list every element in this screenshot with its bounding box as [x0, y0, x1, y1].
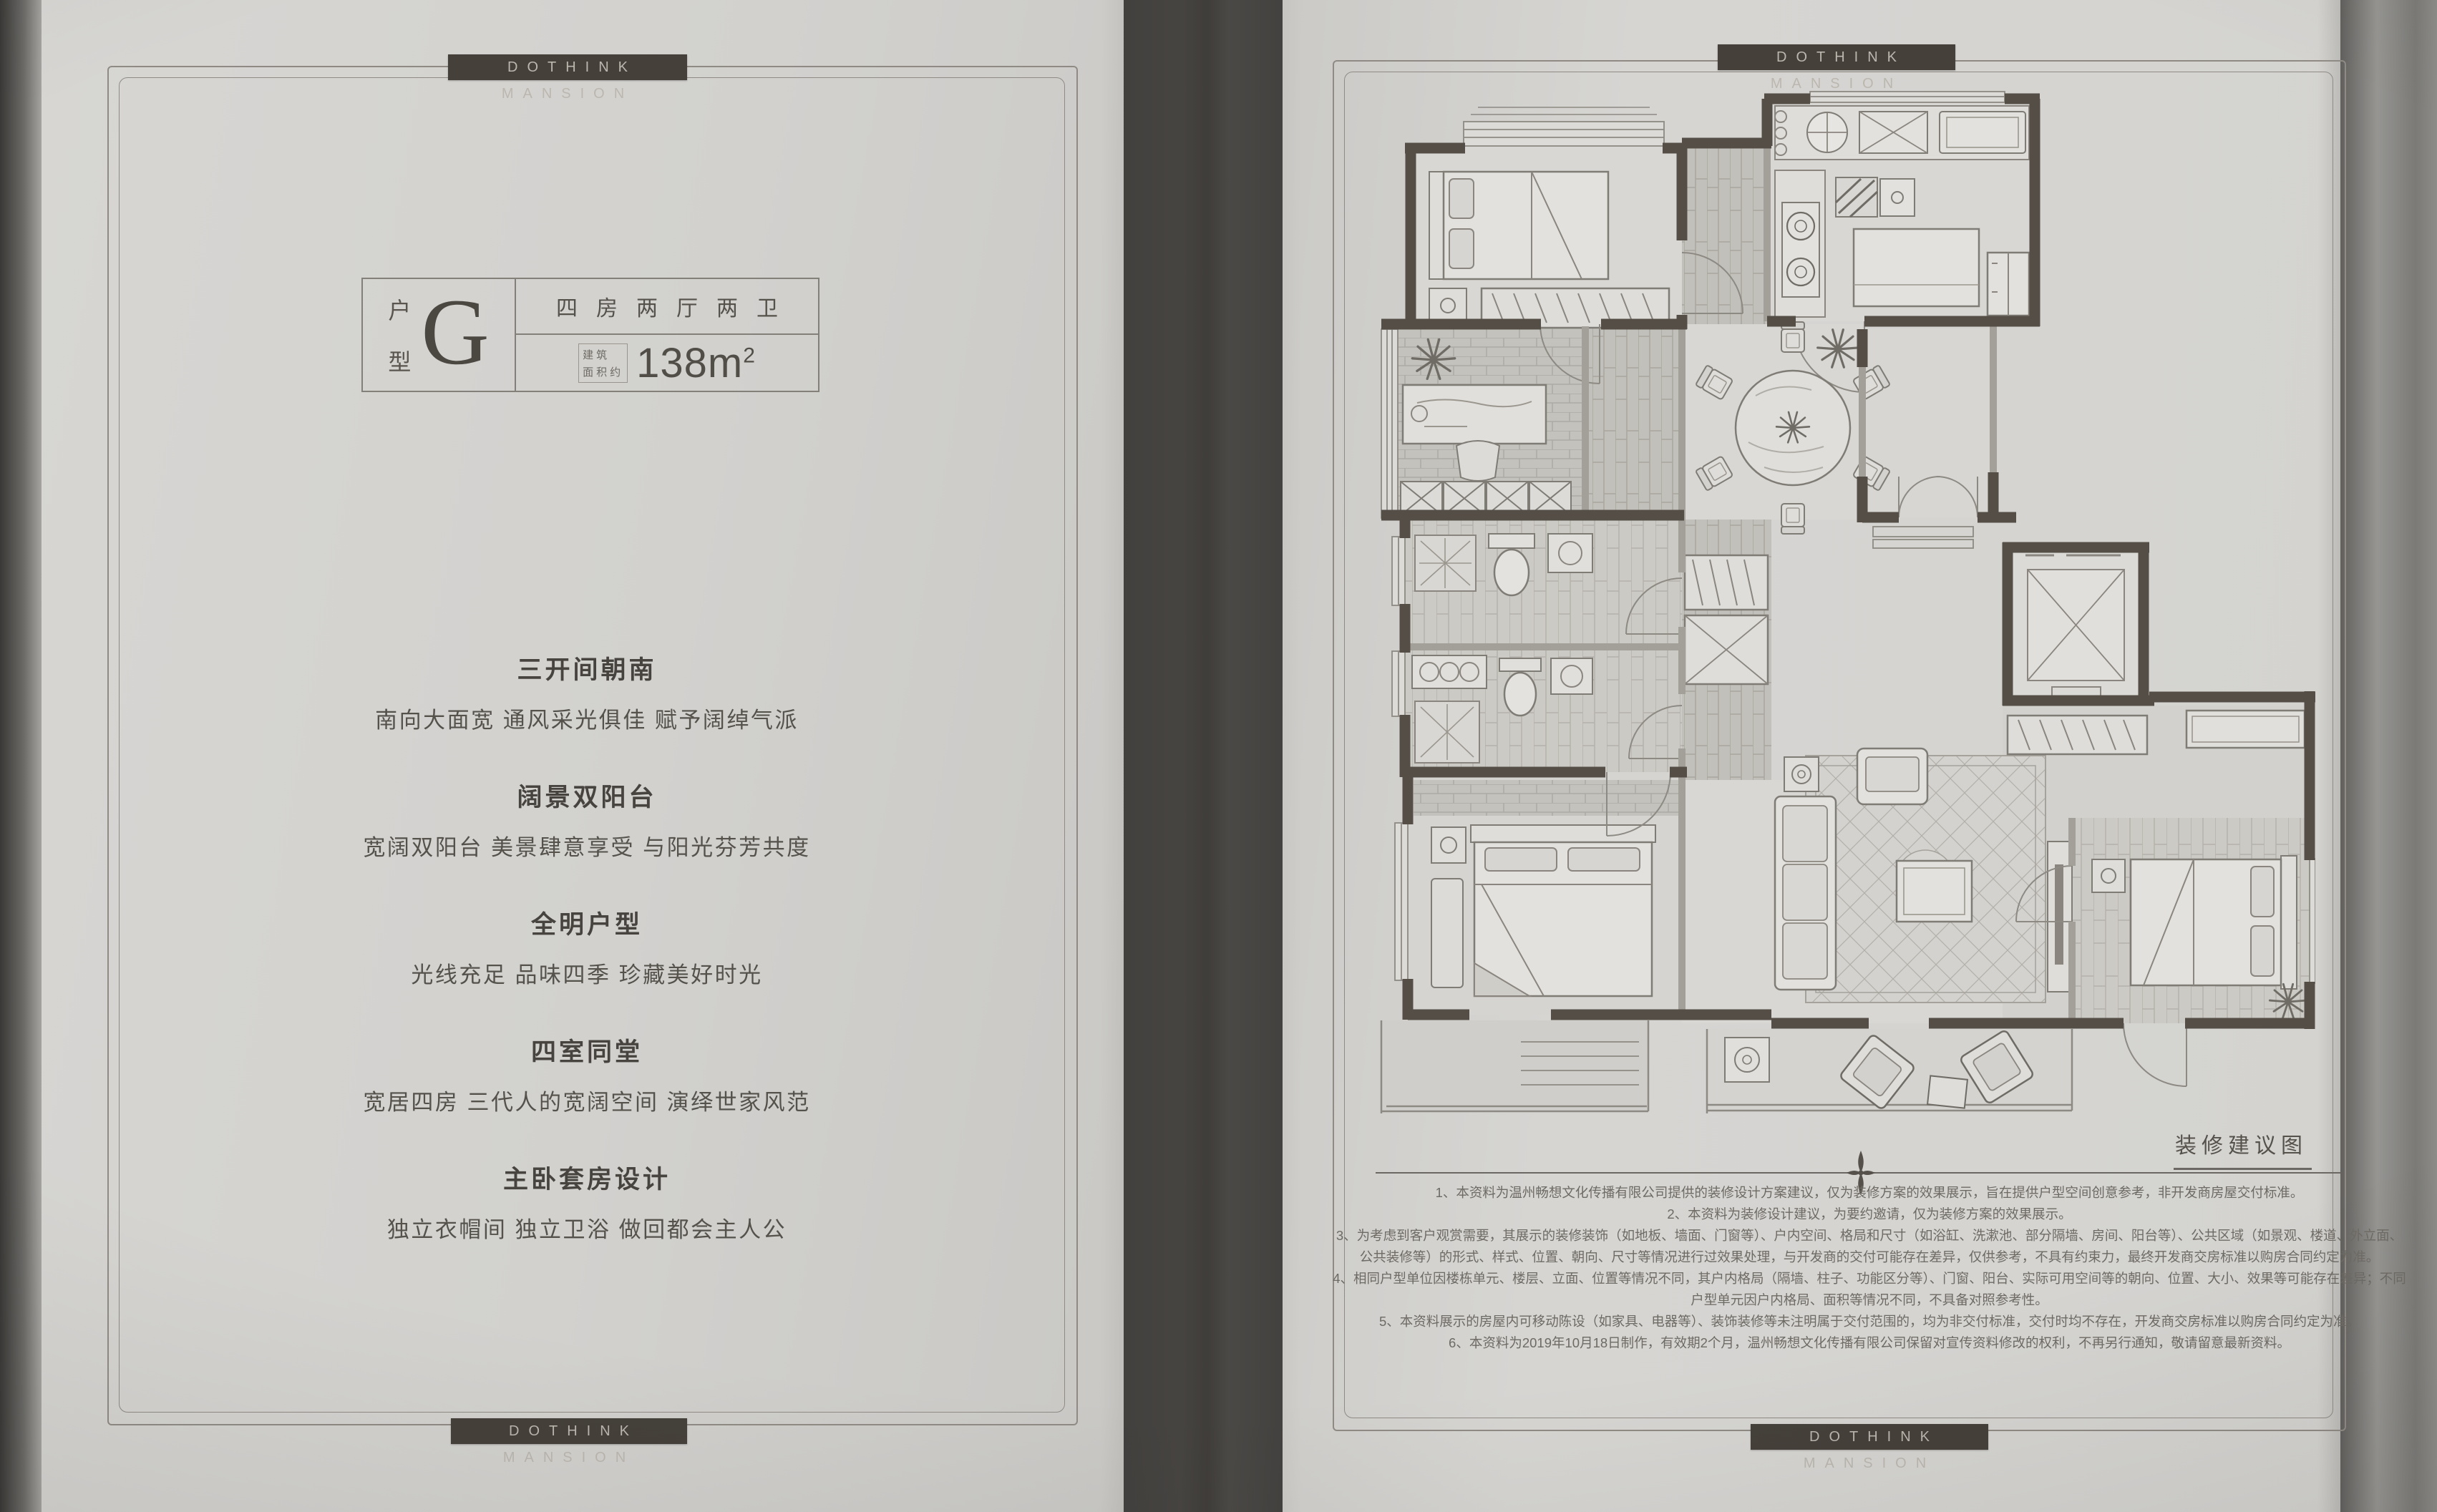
feature-desc: 宽居四房 三代人的宽阔空间 演绎世家风范: [172, 1084, 1002, 1116]
vanity-icon: [1412, 655, 1487, 688]
area-number: 138m: [636, 340, 743, 386]
disclaimer-item: 3、为考虑到客户观赏需要，其展示的装修装饰（如地板、墙面、门窗等）、户内空间、格…: [1333, 1225, 2406, 1268]
washer-icon: [1725, 1038, 1769, 1082]
unit-type-box: 户 型 G 四房两厅两卫 建筑 面积约 138m2: [361, 278, 819, 392]
plan-caption: 装修建议图: [2174, 1128, 2312, 1170]
page-fold-shadow: [1101, 0, 1301, 1512]
unit-area-cell: 建筑 面积约 138m2: [516, 335, 818, 391]
toilet-icon: [1504, 673, 1536, 716]
disclaimer-item: 2、本资料为装修设计建议，为要约邀请，仅为装修方案的效果展示。: [1333, 1204, 2406, 1225]
sink-icon: [1551, 658, 1592, 694]
area-superscript: 2: [743, 343, 756, 367]
elevator-shaft: [2025, 555, 2124, 700]
disclaimer-item: 4、相同户型单位因楼栋单元、楼层、立面、位置等情况不同，其户内格局（隔墙、柱子、…: [1333, 1268, 2406, 1311]
coffee-table-icon: [1897, 861, 1972, 922]
feature-desc: 南向大面宽 通风采光俱佳 赋予阔绰气派: [172, 702, 1002, 734]
brand-bar-left-bottom: DOTHINK MANSION: [451, 1418, 687, 1444]
hall-closet: [1685, 555, 1768, 684]
desk-icon: [1403, 385, 1546, 444]
feature-block: 阔景双阳台 宽阔双阳台 美景肆意享受 与阳光芬芳共度: [172, 777, 1002, 862]
unit-layout-text: 四房两厅两卫: [516, 279, 818, 335]
brand-bar-right-bottom: DOTHINK MANSION: [1751, 1424, 1988, 1450]
feature-title: 阔景双阳台: [172, 777, 1002, 814]
nightstand-icon: [2092, 859, 2125, 892]
kitchen-island: [1854, 229, 1979, 306]
area-note-line2: 面积约: [583, 364, 623, 379]
unit-letter: G: [421, 289, 489, 375]
photo-edge-left: [0, 0, 43, 1512]
feature-list: 三开间朝南 南向大面宽 通风采光俱佳 赋予阔绰气派 阔景双阳台 宽阔双阳台 美景…: [172, 650, 1002, 1287]
feature-title: 主卧套房设计: [172, 1159, 1002, 1196]
brand-bar-left-top: DOTHINK MANSION: [448, 54, 687, 80]
chair-icon: [1456, 441, 1499, 481]
disclaimer-notes: 1、本资料为温州畅想文化传播有限公司提供的装修设计方案建议，仅为装修方案的效果展…: [1333, 1182, 2406, 1354]
feature-desc: 宽阔双阳台 美景肆意享受 与阳光芬芳共度: [172, 829, 1002, 862]
unit-label-char-top: 户: [388, 293, 411, 326]
feature-block: 全明户型 光线充足 品味四季 珍藏美好时光: [172, 904, 1002, 989]
area-note-line1: 建筑: [583, 347, 623, 362]
disclaimer-item: 1、本资料为温州畅想文化传播有限公司提供的装修设计方案建议，仅为装修方案的效果展…: [1333, 1182, 2406, 1204]
unit-info-cells: 四房两厅两卫 建筑 面积约 138m2: [516, 279, 818, 391]
feature-title: 全明户型: [172, 904, 1002, 941]
unit-label-char-bottom: 型: [388, 344, 411, 377]
feature-block: 三开间朝南 南向大面宽 通风采光俱佳 赋予阔绰气派: [172, 650, 1002, 734]
small-sink-icon: [1880, 179, 1915, 216]
unit-type-cell: 户 型 G: [363, 279, 516, 391]
door-arc: [2124, 1023, 2187, 1086]
brand-bar-right-top: DOTHINK MANSION: [1718, 44, 1955, 70]
bench-icon: [1431, 879, 1463, 987]
disclaimer-item: 6、本资料为2019年10月18日制作，有效期2个月，温州畅想文化传播有限公司保…: [1333, 1332, 2406, 1354]
floor-lamp-icon: [1784, 757, 1819, 791]
feature-title: 三开间朝南: [172, 650, 1002, 686]
feature-desc: 光线充足 品味四季 珍藏美好时光: [172, 957, 1002, 989]
disclaimer-item: 5、本资料展示的房屋内可移动陈设（如家具、电器等）、装饰装修等未注明属于交付范围…: [1333, 1311, 2406, 1332]
stove-icon: [1782, 203, 1819, 297]
feature-title: 四室同堂: [172, 1032, 1002, 1068]
side-table-icon: [1927, 1076, 1967, 1108]
unit-type-label: 户 型: [388, 293, 411, 377]
sink-icon: [1548, 534, 1592, 572]
floor-plan-drawing: [1363, 77, 2315, 1115]
unit-area-value: 138m2: [636, 339, 756, 387]
toilet-icon: [1494, 550, 1529, 595]
nightstand-icon: [1431, 827, 1466, 863]
unit-area-note: 建筑 面积约: [578, 343, 628, 383]
feature-desc: 独立衣帽间 独立卫浴 做回都会主人公: [172, 1211, 1002, 1244]
feature-block: 四室同堂 宽居四房 三代人的宽阔空间 演绎世家风范: [172, 1032, 1002, 1116]
nightstand-icon: [1429, 288, 1466, 323]
feature-block: 主卧套房设计 独立衣帽间 独立卫浴 做回都会主人公: [172, 1159, 1002, 1244]
